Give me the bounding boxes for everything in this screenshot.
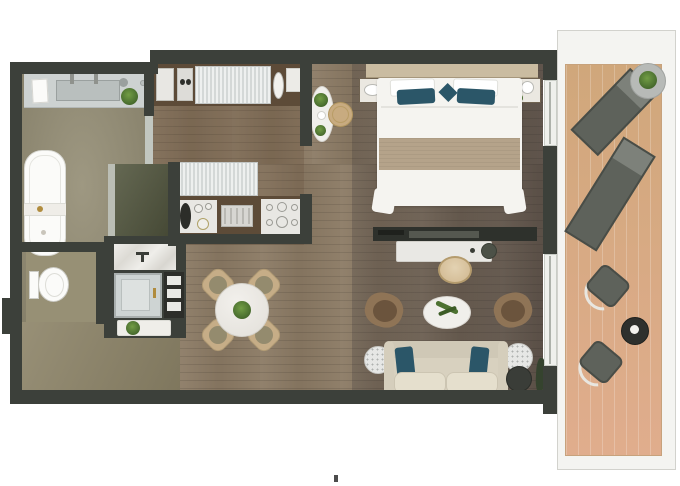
nook-plant [314, 93, 328, 107]
desk-dot-icon [470, 248, 475, 253]
wall-bottom [10, 390, 562, 404]
burner-icon [291, 219, 298, 226]
wall-kitchen-nook [300, 62, 312, 146]
ribbed-cabinet-island [178, 162, 258, 196]
wardrobe-panel [115, 164, 171, 242]
headboard [366, 64, 538, 78]
sink-knob-icon [119, 78, 128, 87]
duvet-fold-line [381, 106, 518, 108]
vessel-sink [180, 203, 191, 229]
table-lamp-icon [521, 81, 534, 94]
bed-runner [379, 138, 520, 170]
armchair-left-seat [373, 300, 397, 322]
bench-plant [126, 321, 140, 335]
small-table-cup-icon [630, 325, 639, 334]
wall-counter-right [300, 194, 312, 244]
sliding-door-bedroom-rail [549, 82, 551, 144]
wall-top-bathroom [10, 62, 158, 74]
vanity-trough-sink [56, 80, 120, 101]
sofa-arm-right [498, 341, 508, 395]
bed-corner-flap [501, 187, 526, 214]
bath-tray [24, 203, 66, 216]
wall-left-bump [2, 298, 12, 334]
wall-top-main [150, 50, 562, 64]
vanity-plant [121, 88, 138, 105]
burner-icon [277, 202, 287, 212]
plate-icon [194, 204, 203, 213]
oval-sink [273, 72, 284, 99]
toilet-seat-rim [45, 273, 64, 297]
bed-pillow-teal [397, 88, 436, 105]
burner-icon [276, 216, 288, 228]
tissue-box [31, 79, 48, 104]
shower-handle-gold [153, 288, 156, 298]
shower-fixture-stem [141, 255, 144, 262]
coffee-knob-icon [186, 79, 191, 85]
glass-shower-door [121, 279, 150, 311]
balcony-table-plant [639, 71, 657, 89]
sliding-door-living-rail [549, 256, 551, 364]
bath-glass-door [145, 116, 153, 164]
faucet-icon [70, 74, 74, 84]
ribbed-cabinet-top [195, 66, 271, 104]
tv-remote-icon [378, 230, 404, 235]
burner-icon [266, 204, 273, 211]
bath-drain-icon [41, 230, 46, 235]
upper-cabinet [156, 68, 174, 101]
wall-left [10, 62, 22, 404]
desk-tray [481, 243, 497, 259]
towel-shelf [167, 276, 181, 285]
towel-shelf [167, 289, 181, 298]
wall-counter-back [174, 234, 312, 244]
tv-console-shelf [409, 231, 479, 238]
rattan-stool-ring [332, 106, 349, 123]
burner-icon [266, 219, 273, 226]
bath-soap-gold [37, 206, 43, 212]
floor-plan [0, 0, 680, 486]
plate-icon [205, 203, 212, 210]
wall-wc-right [96, 242, 106, 324]
pouf [506, 366, 532, 392]
sofa-arm-left [384, 341, 394, 395]
towel-shelf [167, 302, 181, 311]
coffee-machine [177, 68, 193, 101]
bed-corner-flap [371, 187, 396, 214]
dining-centerpiece-plant [233, 301, 251, 319]
marble-shower [114, 244, 176, 270]
bed-pillow-teal [457, 88, 496, 105]
burner-icon [291, 204, 298, 211]
bottom-tick-mark [334, 475, 338, 482]
faucet-icon [94, 74, 98, 84]
nook-cup [317, 111, 326, 120]
cooktop-grill-lines [224, 208, 250, 224]
armchair-right-seat [501, 300, 525, 322]
nook-plant-small [315, 125, 326, 136]
wall-wc-top [22, 242, 106, 252]
plate-icon [197, 218, 209, 230]
coffee-knob-icon [180, 79, 185, 85]
desk-chair [438, 256, 472, 284]
